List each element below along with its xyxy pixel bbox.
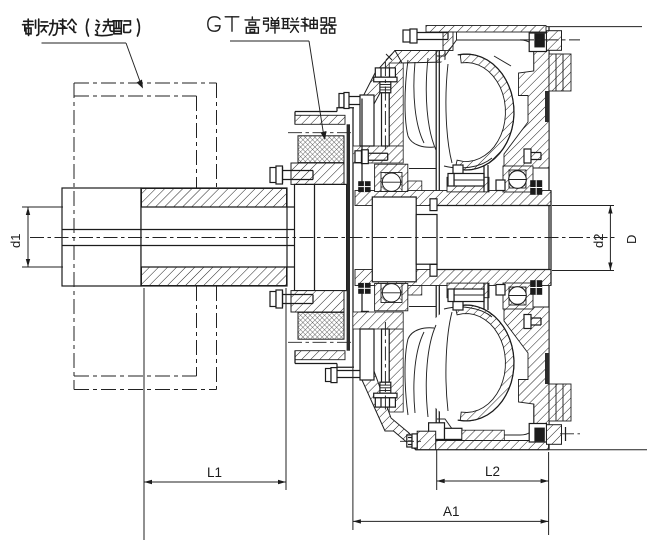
svg-text:L2: L2 [485,464,500,479]
svg-text:D: D [624,235,639,244]
svg-text:L1: L1 [207,465,222,480]
svg-text:d2: d2 [591,234,606,248]
svg-text:A1: A1 [443,504,460,519]
svg-text:d1: d1 [8,234,23,248]
